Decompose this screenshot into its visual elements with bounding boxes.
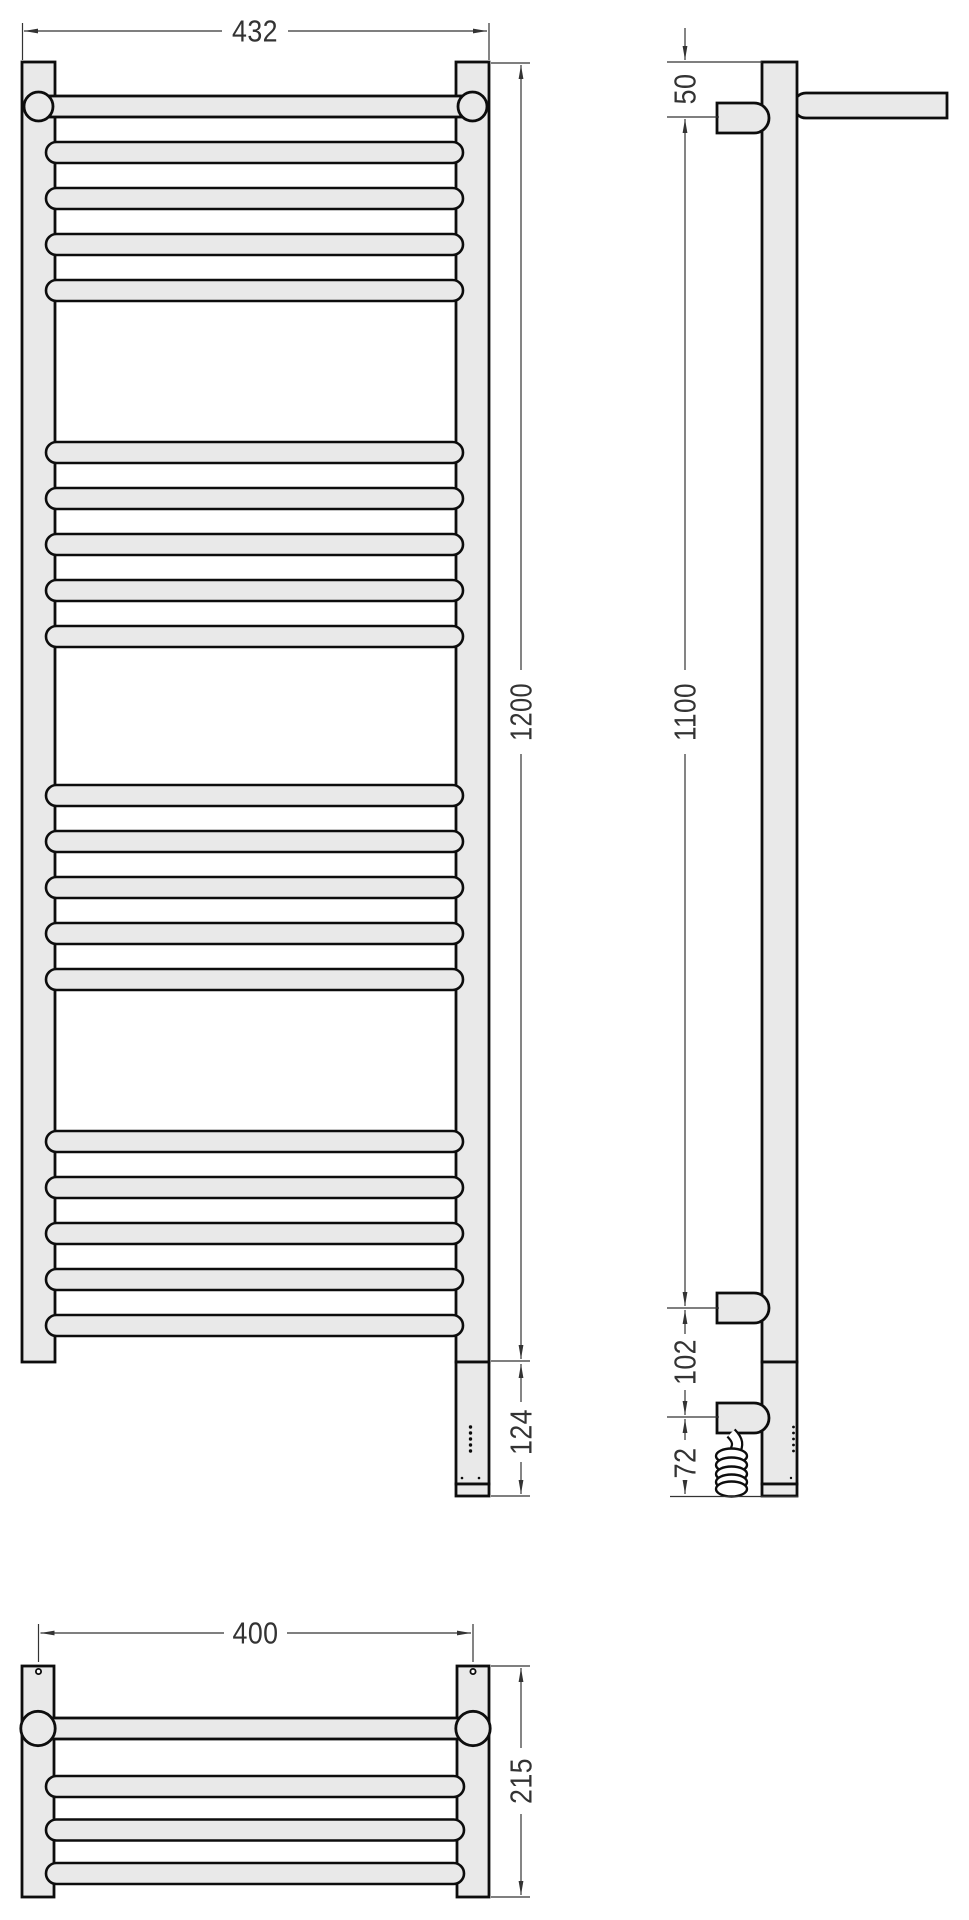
front-left-post (22, 62, 55, 1362)
rung (46, 1315, 463, 1336)
dim-label-1100: 1100 (668, 683, 703, 741)
screw-dot (478, 1477, 481, 1480)
towel-rail-drawing: 432 1200 124 50 1100 102 (0, 0, 969, 1920)
led-dot (469, 1449, 472, 1452)
heating-element-end-cap-side (762, 1484, 797, 1496)
rung (46, 188, 463, 209)
mount-hole-left (36, 1669, 41, 1674)
rung (46, 626, 463, 647)
led-dot (469, 1425, 472, 1428)
front-right-mount-boss (458, 92, 487, 121)
dim-label-72: 72 (668, 1448, 703, 1479)
led-dot (792, 1426, 795, 1429)
rung (46, 923, 463, 944)
mount-hole-right (470, 1669, 475, 1674)
screw-dot (790, 1477, 792, 1479)
dim-label-102: 102 (668, 1339, 703, 1385)
led-dot (469, 1431, 472, 1434)
heater-mount-bracket (717, 1403, 769, 1433)
rung (46, 488, 463, 509)
led-dot (792, 1444, 795, 1447)
dim-label-50: 50 (668, 74, 703, 105)
rung (46, 785, 463, 806)
technical-drawing-page: 432 1200 124 50 1100 102 (0, 0, 969, 1920)
shelf-bars (46, 1776, 464, 1884)
top-view-left-boss (21, 1711, 55, 1745)
rung (46, 1177, 463, 1198)
front-left-mount-boss (24, 92, 53, 121)
shelf-bar (46, 1863, 464, 1884)
led-dot (469, 1443, 472, 1446)
led-dot (469, 1437, 472, 1440)
dim-label-432: 432 (232, 14, 278, 49)
led-dot (792, 1438, 795, 1441)
side-shelf-arm (794, 93, 947, 118)
rung (46, 877, 463, 898)
led-dot (792, 1432, 795, 1435)
rung (46, 580, 463, 601)
shelf-bar (46, 1776, 464, 1797)
dim-label-124: 124 (504, 1409, 539, 1455)
rung (46, 442, 463, 463)
heating-element-front (456, 1362, 489, 1484)
dim-label-400: 400 (233, 1616, 279, 1651)
dim-label-1200: 1200 (504, 683, 539, 741)
rung (46, 534, 463, 555)
front-top-rail (38, 96, 472, 117)
rung (46, 1223, 463, 1244)
dim-label-215: 215 (504, 1758, 539, 1804)
led-dot (792, 1450, 795, 1453)
top-view-front-rail (38, 1718, 473, 1739)
rung (46, 1131, 463, 1152)
rung (46, 280, 463, 301)
wall-bracket-bottom (717, 1293, 769, 1323)
rung (46, 234, 463, 255)
rung (46, 1269, 463, 1290)
top-view-right-boss (456, 1711, 490, 1745)
heating-element-end-cap-front (456, 1484, 489, 1496)
screw-dot (461, 1477, 464, 1480)
front-right-post (456, 62, 489, 1362)
rung (46, 142, 463, 163)
wall-bracket-top (717, 103, 769, 133)
shelf-bar (46, 1820, 464, 1841)
rung (46, 831, 463, 852)
side-post (762, 62, 797, 1362)
cable-coil-loop (716, 1482, 747, 1497)
rung (46, 969, 463, 990)
